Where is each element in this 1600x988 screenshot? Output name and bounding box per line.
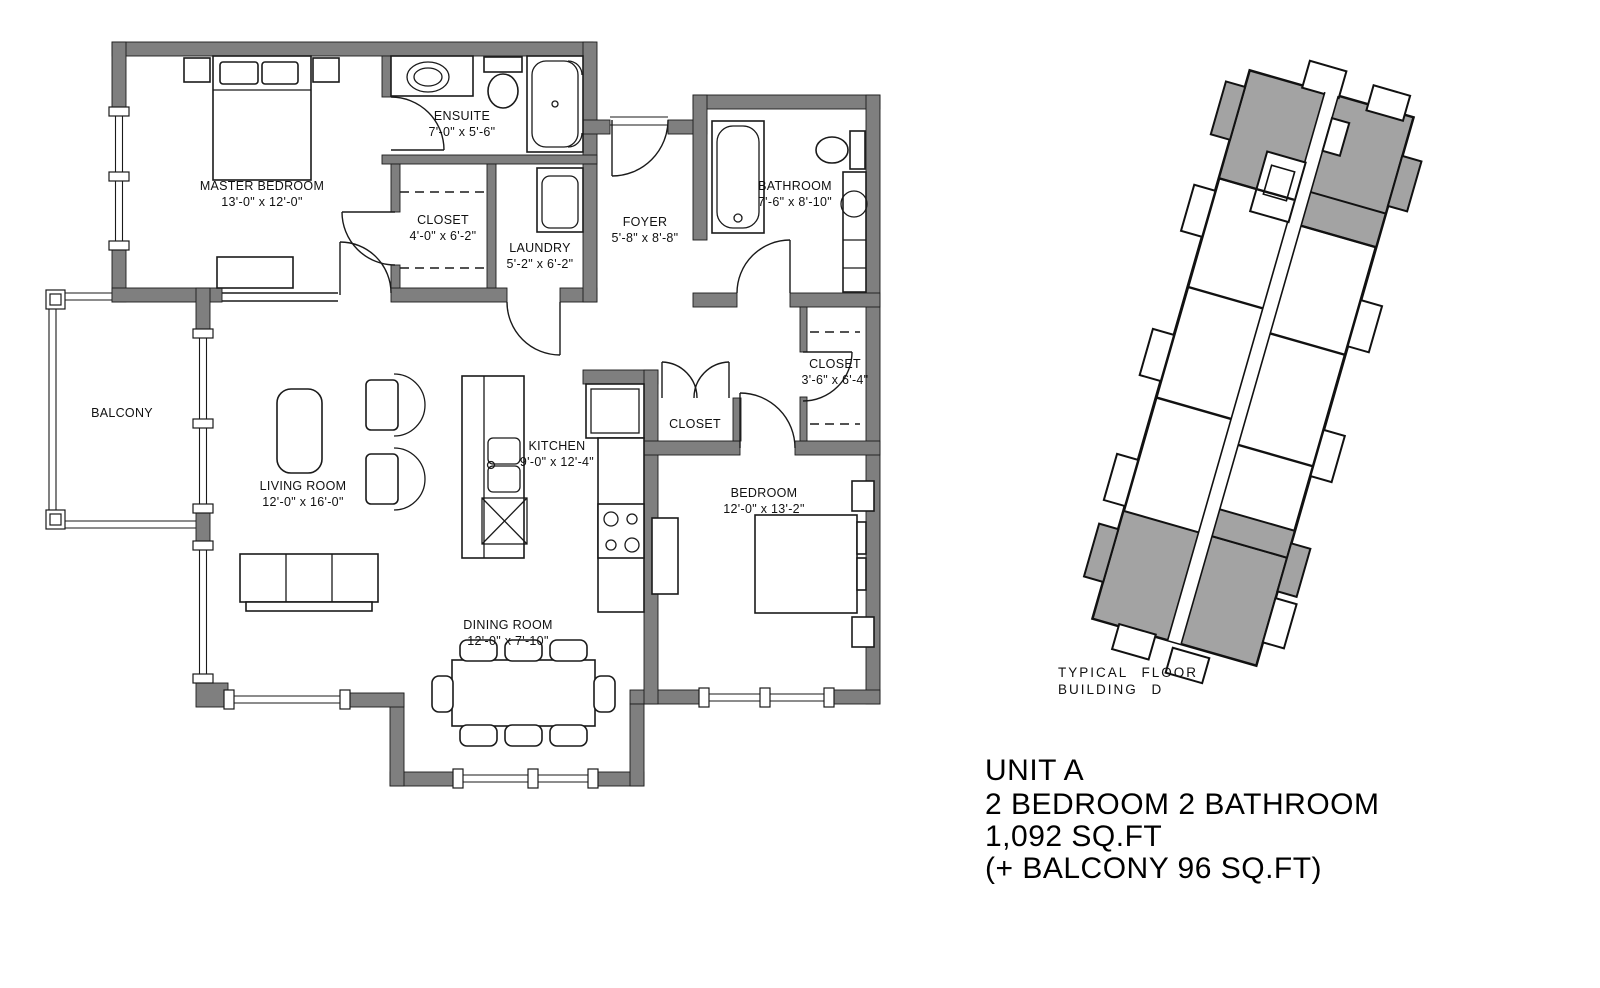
nightstand [184,58,210,82]
room-label: BALCONY [91,406,153,420]
toilet-bowl [488,74,518,108]
room-dims: 9'-0" x 12'-4" [520,455,594,469]
chair [550,640,587,661]
chair [594,676,615,712]
caption-line-2: BUILDING D [1058,682,1163,697]
room-label: KITCHEN [529,439,586,453]
unit-name: UNIT A [985,754,1084,787]
dining-table [452,660,595,726]
caption-line-1: TYPICAL FLOOR [1058,665,1198,680]
room-dims: 12'-0" x 16'-0" [262,495,343,509]
fridge [586,384,644,438]
dresser [652,518,678,594]
unit-config: 2 BEDROOM 2 BATHROOM [985,788,1380,821]
room-dims: 5'-2" x 6'-2" [507,257,574,271]
kitchen-fixtures [462,376,644,612]
sofa [240,554,378,611]
room-dims: 7'-6" x 8'-10" [758,195,832,209]
room-dims: 4'-0" x 6'-2" [410,229,477,243]
laundry-fixtures [537,168,583,232]
nightstand [852,481,874,511]
floor-plan-sheet: MASTER BEDROOM 13'-0" x 12'-0" ENSUITE 7… [0,0,1600,988]
bathtub [712,121,764,233]
laundry-door [507,302,560,355]
washer [537,168,583,232]
chair [505,725,542,746]
chair [550,725,587,746]
site-plan-caption: TYPICAL FLOOR BUILDING D [1058,665,1198,697]
ensuite-door [391,97,444,150]
bathroom-door [737,240,790,293]
nightstand [313,58,339,82]
dresser [217,257,293,288]
room-label: BATHROOM [758,179,832,193]
room-label: DINING ROOM [463,618,552,632]
room-dims: 5'-8" x 8'-8" [612,231,679,245]
toilet-tank [850,131,865,169]
dining-room-furniture [432,640,615,746]
room-label: CLOSET [669,417,721,431]
room-label: CLOSET [809,357,861,371]
room-dims: 12'-0" x 13'-2" [723,502,804,516]
room-label: LIVING ROOM [260,479,347,493]
unit-area: 1,092 SQ.FT [985,820,1162,853]
room-label: MASTER BEDROOM [200,179,324,193]
room-dims: 13'-0" x 12'-0" [221,195,302,209]
toilet-tank [484,57,522,72]
room-label: LAUNDRY [509,241,571,255]
floor-plan-drawing: MASTER BEDROOM 13'-0" x 12'-0" ENSUITE 7… [0,0,1600,988]
room-label: FOYER [623,215,668,229]
title-block: UNIT A 2 BEDROOM 2 BATHROOM 1,092 SQ.FT … [985,754,1380,885]
coffee-table [277,389,322,473]
room-dims: 7'-0" x 5'-6" [429,125,496,139]
room-label: CLOSET [417,213,469,227]
shower [527,56,583,152]
chair [460,725,497,746]
kitchen-island [462,376,527,558]
site-plan-building [1063,40,1442,703]
armchair [366,448,425,510]
room-dims: 3'-6" x 6'-4" [802,373,869,387]
bathroom-vanity [841,172,867,292]
master-bedroom-door [340,242,391,295]
stove [598,504,644,558]
room-label: BEDROOM [731,486,798,500]
nightstand [852,617,874,647]
toilet-bowl [816,137,848,163]
room-label: ENSUITE [434,109,490,123]
bedroom-door [740,393,795,448]
master-bedroom-furniture [184,56,339,288]
chair [432,676,453,712]
armchair [366,374,425,436]
entry-door [612,120,668,176]
balcony-area: (+ BALCONY 96 SQ.FT) [985,852,1322,885]
master-closet-door [342,212,395,265]
hall-closet-double-doors [662,362,729,398]
room-dims: 12'-0" x 7'-10" [467,634,548,648]
bed [755,515,857,613]
